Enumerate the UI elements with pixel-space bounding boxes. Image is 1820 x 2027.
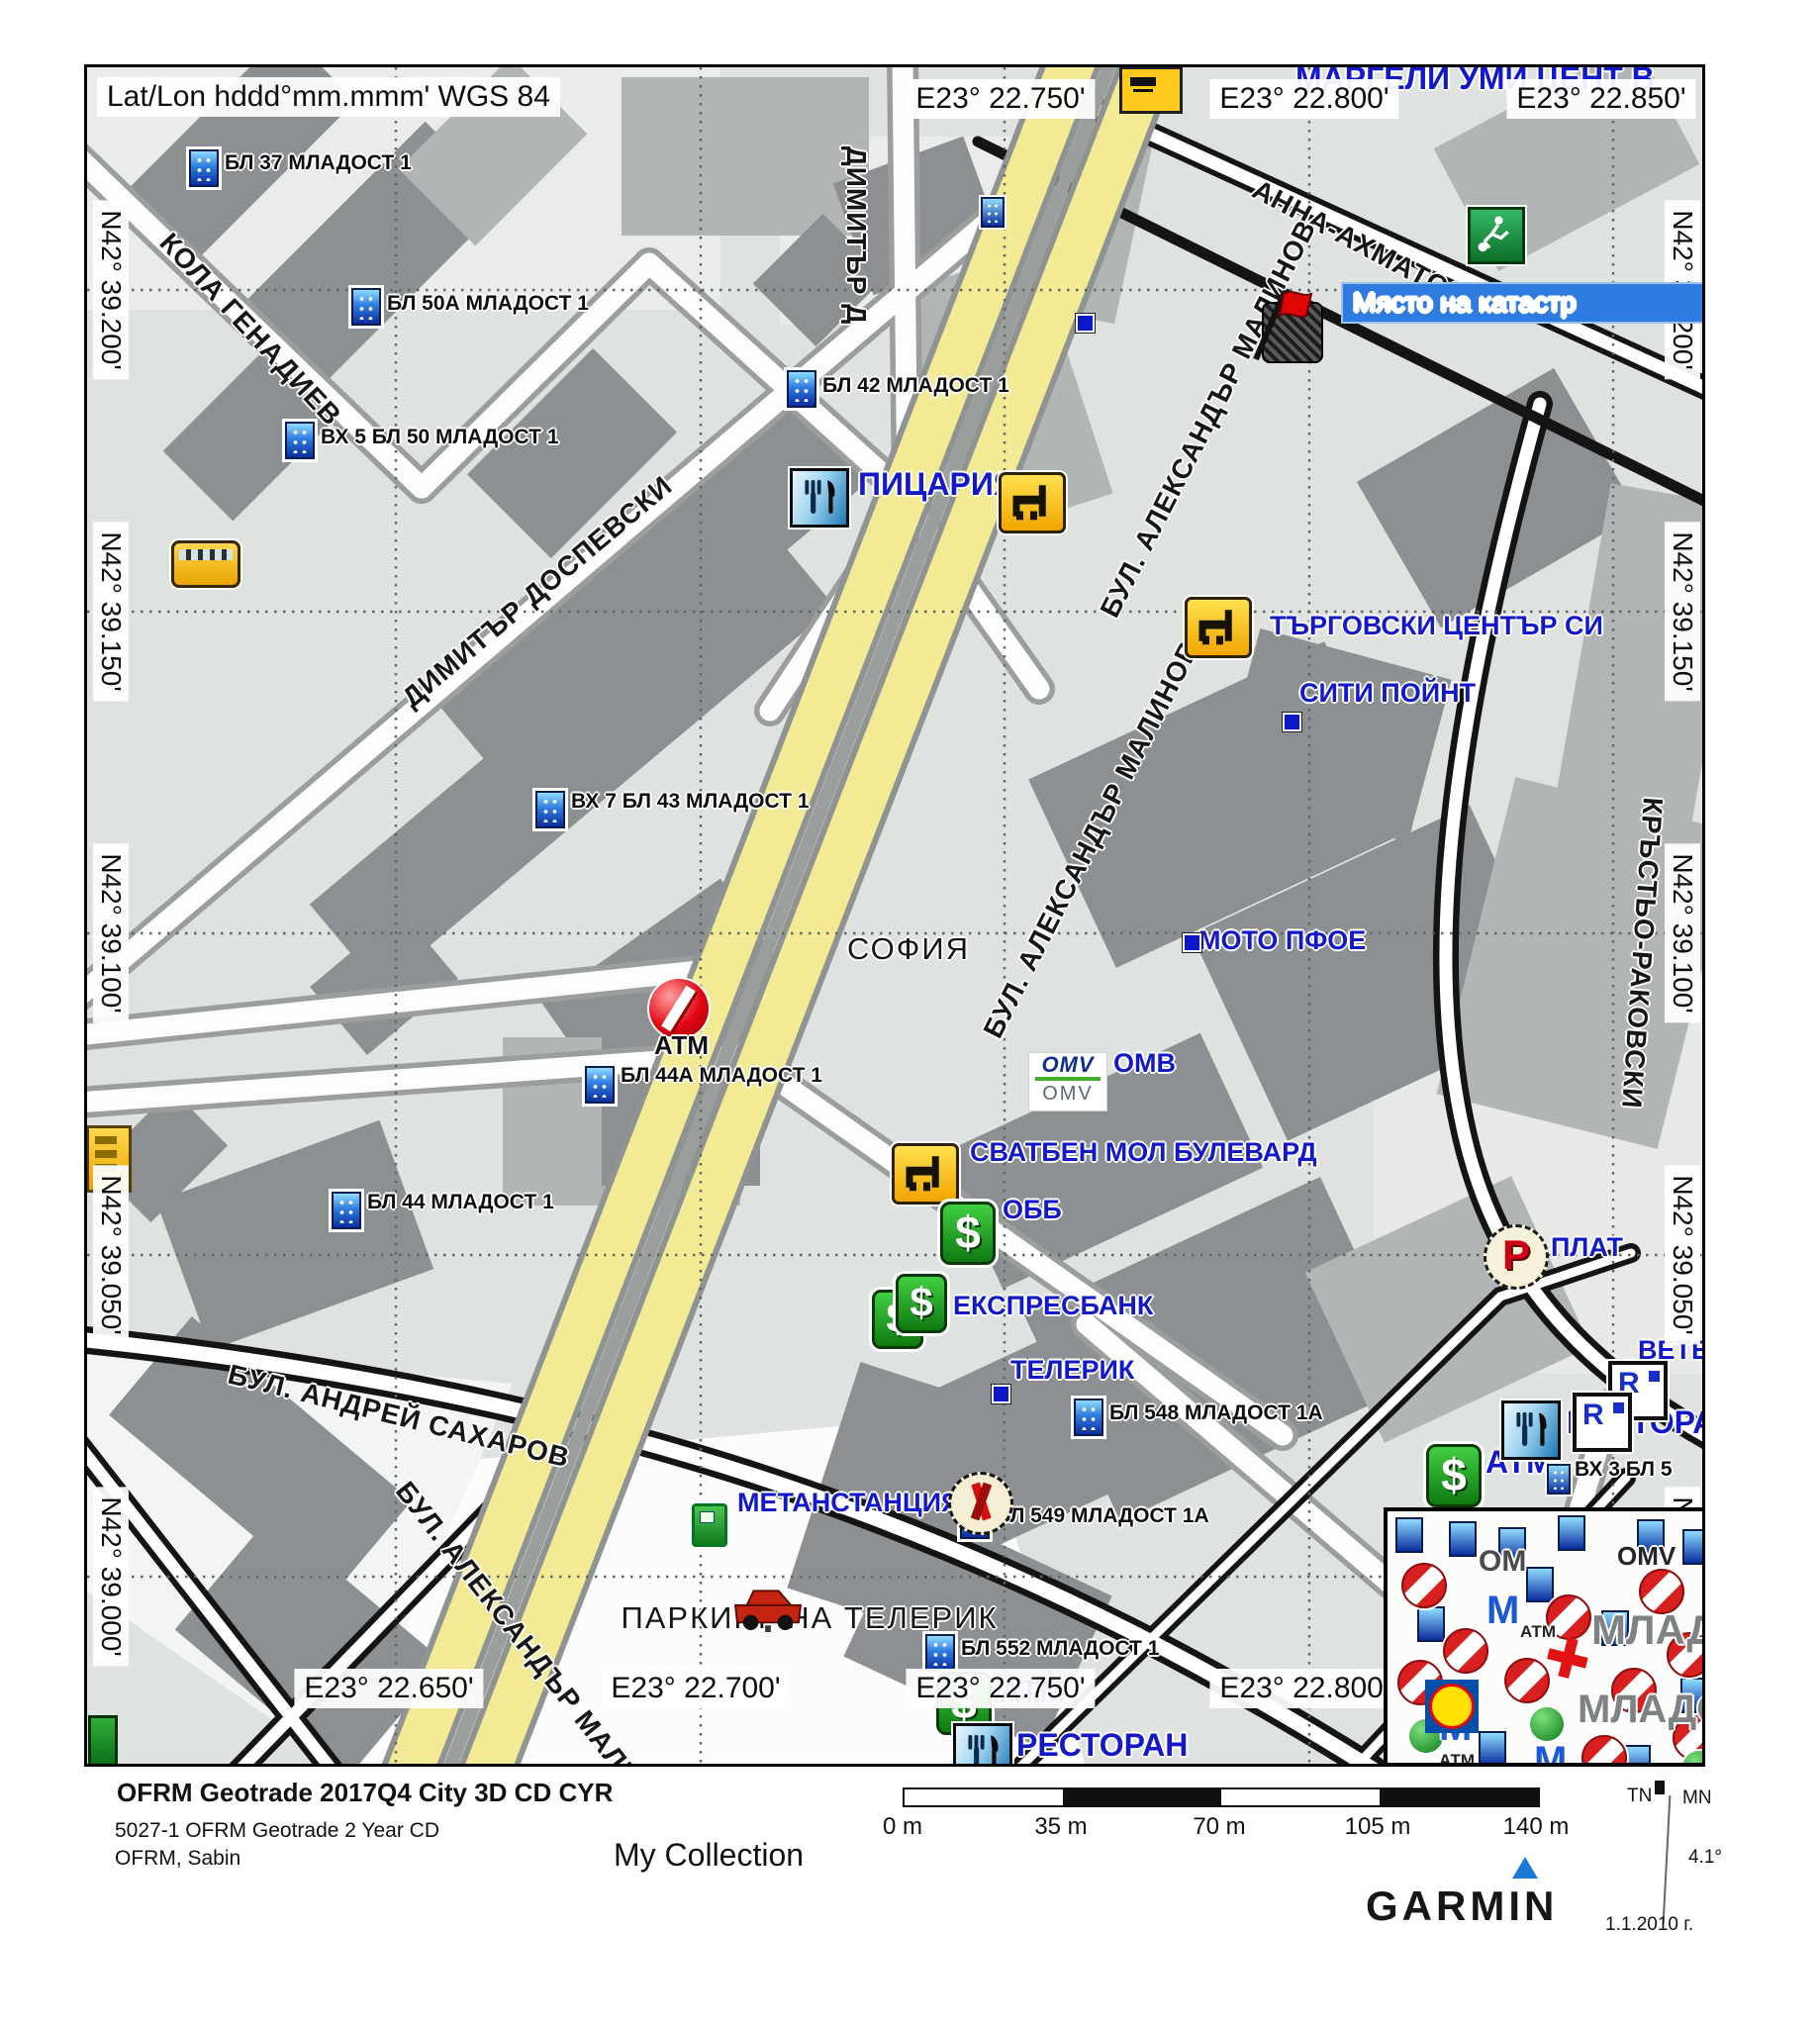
poi-atm-549-icon[interactable]: $ [1426, 1444, 1482, 1507]
poi-pizaria-label: ПИЦАРИЯ [858, 466, 1016, 503]
poi-restoran-icon[interactable] [953, 1723, 1012, 1767]
grid-label-bottom-0: E23° 22.650' [294, 1669, 483, 1708]
grid-label-top-0: E23° 22.750' [906, 79, 1095, 119]
inset-item-l-28 [1425, 1680, 1479, 1733]
poi-vh5-bl50-label: ВХ 5 БЛ 50 МЛАДОСТ 1 [321, 426, 559, 449]
grid-label-top-2: E23° 22.850' [1506, 79, 1695, 119]
poi-omv-label: ОМВ [1113, 1048, 1176, 1079]
street-label-2: ДИМИТЪР Д [840, 146, 872, 325]
magnetic-north-label: MN [1682, 1787, 1712, 1809]
collection-title: My Collection [614, 1837, 804, 1874]
poi-targovski-centar-label: ТЪРГОВСКИ ЦЕНТЪР СИ [1270, 611, 1603, 641]
garmin-logo: GARMIN [1366, 1882, 1558, 1930]
poi-omv-icon[interactable]: OMVOMV [1028, 1052, 1107, 1111]
poi-metanstancia-icon[interactable] [692, 1503, 727, 1547]
poi-bl-44-label: БЛ 44 МЛАДОСТ 1 [367, 1191, 554, 1214]
inset-item-b-11 [1526, 1567, 1554, 1602]
poi-bl-37-icon[interactable] [189, 149, 219, 187]
poi-bl-44-icon[interactable] [332, 1192, 361, 1229]
poi-vh3-bl5-label: ВХ 3 БЛ 5 [1575, 1458, 1673, 1482]
poi-bl-548-icon[interactable] [1074, 1399, 1103, 1436]
scale-label-1: 35 m [1034, 1813, 1087, 1841]
scale-label-2: 70 m [1193, 1813, 1245, 1841]
inset-item-b-3 [1558, 1515, 1585, 1551]
poi-bl-37-label: БЛ 37 МЛАДОСТ 1 [225, 151, 412, 175]
grid-label-left-2: N42° 39.100' [93, 843, 129, 1022]
garmin-delta-icon [1512, 1857, 1538, 1879]
poi-platen-parking-label: ПЛАТ [1551, 1232, 1623, 1263]
poi-svatben-mol-label: СВАТБЕН МОЛ БУЛЕВАРД [970, 1137, 1317, 1168]
grid-label-right-1: N42° 39.150' [1665, 522, 1700, 701]
poi-ekspresbank-icon[interactable]: $$ [872, 1274, 949, 1347]
poi-dot-top-icon[interactable] [1076, 314, 1095, 333]
grid-label-bottom-2: E23° 22.750' [906, 1669, 1095, 1708]
poi-bl-42-label: БЛ 42 МЛАДОСТ 1 [822, 374, 1009, 398]
poi-rest-549-icon[interactable] [1501, 1400, 1561, 1460]
poi-citi-point-icon[interactable] [1283, 713, 1301, 731]
crash-site-tooltip[interactable]: Място на катастр [1341, 282, 1705, 324]
poi-targovski-centar-icon[interactable] [1185, 597, 1252, 658]
scale-label-4: 140 m [1503, 1813, 1570, 1841]
grid-label-top-1: E23° 22.800' [1209, 79, 1398, 119]
poi-sports-icon[interactable] [1468, 207, 1525, 264]
inset-item-b-6 [1417, 1606, 1445, 1642]
poi-telerik-label: ТЕЛЕРИК [1010, 1355, 1134, 1386]
map-author: OFRM, Sabin [115, 1847, 240, 1871]
poi-bl-44a-icon[interactable] [585, 1066, 615, 1104]
inset-item-m-27: М [1534, 1739, 1567, 1767]
inset-item-b-5 [1682, 1529, 1705, 1565]
scale-label-0: 0 m [883, 1813, 922, 1841]
poi-svatben-mol-icon[interactable] [892, 1143, 959, 1205]
poi-bl-552-label: БЛ 552 МЛАДОСТ 1 [961, 1637, 1159, 1661]
inset-item-text-31: OMV [1617, 1541, 1676, 1572]
true-north-label: TN [1627, 1786, 1652, 1807]
poi-ornament-icon[interactable] [948, 1472, 1013, 1535]
grid-label-right-3: N42° 39.050' [1665, 1165, 1700, 1344]
poi-shopping-1-icon[interactable] [999, 472, 1066, 533]
inset-item-b-1 [1449, 1521, 1477, 1557]
poi-pizaria-icon[interactable] [790, 468, 849, 528]
inset-item-m-25: М [1486, 1589, 1519, 1633]
poi-telerik-icon[interactable] [992, 1385, 1010, 1403]
poi-obb-icon[interactable]: $ [940, 1202, 996, 1265]
poi-platen-parking-icon[interactable]: P [1484, 1224, 1549, 1290]
poi-atm-unicredit-icon[interactable] [649, 979, 709, 1038]
map-canvas[interactable]: Lat/Lon hddd°mm.mmm' WGS 84 Място на кат… [84, 64, 1705, 1767]
grid-label-right-2: N42° 39.100' [1665, 843, 1700, 1022]
poi-moto-pfohe-label: МОТО ПФОЕ [1198, 925, 1366, 956]
scale-label-3: 105 m [1345, 1813, 1411, 1841]
inset-item-text-33: АТМ [1439, 1751, 1475, 1767]
grid-label-bottom-1: E23° 22.700' [601, 1669, 790, 1708]
datum-label: Lat/Lon hddd°mm.mmm' WGS 84 [97, 77, 560, 117]
map-product-name: OFRM Geotrade 2017Q4 City 3D CD CYR [117, 1778, 613, 1808]
grid-label-left-1: N42° 39.150' [93, 522, 129, 701]
poi-rx-2-icon[interactable]: R [1573, 1393, 1632, 1452]
poi-vh7-bl43-label: ВХ 7 БЛ 43 МЛАДОСТ 1 [571, 790, 810, 814]
street-label-9: СОФИЯ [847, 931, 970, 967]
inset-item-n-13 [1443, 1628, 1488, 1674]
poi-obb-label: ОББ [1003, 1195, 1062, 1225]
declination-line [1663, 1795, 1672, 1924]
poi-moto-pfohe-icon[interactable] [1183, 933, 1201, 952]
grid-label-bottom-3: E23° 22.800' [1209, 1669, 1398, 1708]
poi-vh7-bl43-icon[interactable] [535, 791, 565, 828]
poi-bl-548-label: БЛ 548 МЛАДОСТ 1А [1109, 1401, 1323, 1425]
mapsource-window: Lat/Lon hddd°mm.mmm' WGS 84 Място на кат… [0, 0, 1820, 2027]
poi-metanstancia-label: МЕТАНСТАНЦИЯ [737, 1488, 960, 1518]
poi-bl-549-label: БЛ 549 МЛАДОСТ 1А [996, 1504, 1209, 1528]
poi-ylw-top-part-icon[interactable] [1119, 66, 1183, 114]
map-date: 1.1.2010 г. [1605, 1914, 1693, 1936]
poi-bl-50a-label: БЛ 50А МЛАДОСТ 1 [387, 292, 589, 316]
poi-crash-flag-icon[interactable] [1242, 288, 1323, 363]
poi-bl-42-icon[interactable] [787, 370, 816, 408]
poi-grn-bottom-part-icon[interactable] [88, 1715, 118, 1767]
declination-value: 4.1° [1688, 1847, 1722, 1869]
poi-vh5-bl50-icon[interactable] [285, 422, 315, 459]
inset-item-text-34: МЛАДО [1591, 1606, 1705, 1654]
inset-item-n-12 [1401, 1563, 1447, 1608]
scale-bar [903, 1787, 1540, 1807]
poi-bldg-top-icon[interactable] [981, 197, 1005, 228]
poi-atm-unicredit-label: АТМ [654, 1030, 709, 1061]
inset-item-n-20 [1581, 1735, 1627, 1767]
grid-label-left-4: N42° 39.000' [93, 1487, 129, 1666]
grid-label-left-3: N42° 39.050' [93, 1165, 129, 1344]
poi-vh3-bl5-icon[interactable] [1547, 1464, 1571, 1495]
map-product-line2: 5027-1 OFRM Geotrade 2 Year CD [115, 1819, 439, 1843]
grid-label-left-0: N42° 39.200' [93, 200, 129, 379]
inset-item-b-0 [1395, 1517, 1423, 1553]
poi-bl-552-icon[interactable] [925, 1634, 955, 1672]
inset-item-b-9 [1479, 1731, 1506, 1767]
street-label-10: ПАРКИНГ НА ТЕЛЕРИК [621, 1600, 998, 1636]
inset-item-text-30: OM [1479, 1545, 1526, 1579]
poi-school-bus-icon[interactable] [171, 540, 240, 588]
poi-bl-50a-icon[interactable] [351, 288, 381, 326]
inset-item-n-18 [1504, 1658, 1550, 1703]
inset-item-g-22 [1528, 1705, 1566, 1743]
poi-citi-point-label: СИТИ ПОЙНТ [1299, 678, 1476, 709]
poi-restoran-label: РЕСТОРАН [1016, 1727, 1188, 1764]
poi-car-service-icon[interactable] [729, 1571, 807, 1632]
poi-bl-44a-label: БЛ 44А МЛАДОСТ 1 [621, 1064, 822, 1088]
inset-item-text-35: МЛАДОСТ [1578, 1688, 1705, 1732]
poi-ekspresbank-label: ЕКСПРЕСБАНК [953, 1291, 1153, 1321]
inset-item-text-32: АТМ [1520, 1622, 1556, 1642]
overview-inset-map[interactable]: МММOMOMVАТМАТММЛАДОМЛАДОСТ [1384, 1507, 1705, 1767]
north-marker [1655, 1781, 1665, 1794]
inset-item-b-10 [1623, 1745, 1651, 1767]
